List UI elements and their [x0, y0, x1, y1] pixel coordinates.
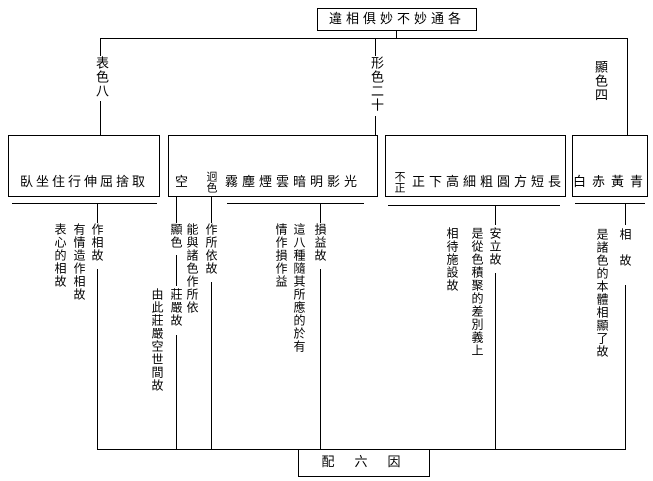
bracket-xianse-stub — [625, 203, 626, 225]
branch-left-line-bottom — [100, 101, 101, 135]
box-char-jiongse: 迥色 — [205, 171, 218, 193]
bracket-xianse — [575, 203, 645, 204]
bracket-xingse-stub — [495, 205, 496, 225]
bracket-xingse — [388, 205, 560, 206]
gloss-jiongse-note: 能與諸色作所依 — [184, 223, 200, 314]
branch-middle-line-top — [375, 38, 376, 56]
gloss-wu-guang-note1: 這八種隨其所應的於有 — [291, 223, 307, 353]
gloss-biaose-line — [97, 269, 98, 449]
branch-middle-line-bottom — [375, 116, 376, 135]
stub-jiongse — [211, 197, 212, 223]
gloss-xingse-chain: 安立故 — [487, 227, 503, 266]
gloss-jiongse-line — [211, 282, 212, 449]
bracket-wu-guang — [227, 203, 364, 204]
box-xingse-a: 空 迥色 霧塵煙雲暗明影光 — [168, 135, 378, 197]
root-node: 違相俱妙不妙通各 — [317, 8, 477, 31]
branch-label-xianse: 顯色四 — [591, 60, 607, 102]
bracket-biaose-stub — [97, 203, 98, 223]
box-char-buzheng: 不正 — [393, 171, 406, 193]
gloss-xingse-note2: 相待施設故 — [444, 227, 460, 292]
footer-node: 配六因相 — [298, 449, 430, 477]
branch-label-biaose: 表色八 — [92, 56, 108, 98]
box-xianse: 白赤黃青 — [572, 135, 648, 197]
gloss-kong-chain2: 莊嚴故 — [168, 288, 184, 327]
gloss-wu-guang-line — [320, 269, 321, 449]
gloss-wu-guang-chain: 損益故 — [312, 223, 328, 262]
box-chars-wu-guang: 霧塵煙雲暗明影光 — [225, 171, 361, 190]
branch-right-line — [627, 38, 628, 135]
bracket-biaose — [12, 203, 157, 204]
gloss-wu-guang-note2: 情作損作益 — [273, 223, 289, 288]
gloss-kong-line — [176, 335, 177, 449]
gloss-biaose-note1: 有情造作相故 — [71, 223, 87, 301]
gloss-xingse-note1: 是從色積聚的差別義上 — [469, 227, 485, 357]
diagram-canvas: 違相俱妙不妙通各 表色八 形色二十 顯色四 臥坐住行伸屈捨取 空 迥色 霧塵煙雲… — [0, 0, 653, 481]
gloss-kong-midline — [176, 255, 177, 286]
bracket-wu-guang-stub — [320, 203, 321, 223]
gloss-kong-chain1: 顯色 — [168, 223, 184, 249]
root-stem-line — [396, 31, 397, 38]
box-xianse-chars: 白赤黃青 — [573, 171, 647, 190]
gloss-xingse-line — [495, 273, 496, 449]
gloss-xianse-note: 是諸色的本體相顯了故 — [594, 228, 610, 358]
box-biaose: 臥坐住行伸屈捨取 — [8, 135, 160, 197]
branch-left-line-top — [100, 38, 101, 56]
box-chars-zheng-chang: 正下高細粗圓方短長 — [412, 171, 565, 190]
gloss-biaose-chain: 作相故 — [89, 223, 105, 262]
box-char-kong: 空 — [175, 171, 188, 190]
gloss-kong-note: 由此莊嚴空世間故 — [149, 288, 165, 392]
gloss-xianse-line — [625, 285, 626, 449]
gloss-biaose-note2: 表心的相故 — [52, 223, 68, 288]
stub-kong — [176, 197, 177, 223]
box-xingse-b: 不正 正下高細粗圓方短長 — [385, 135, 566, 197]
gloss-xianse-chain: 相 故 — [617, 228, 633, 267]
branch-label-xingse: 形色二十 — [367, 56, 383, 112]
gloss-jiongse-chain: 作所依故 — [203, 223, 219, 275]
box-biaose-chars: 臥坐住行伸屈捨取 — [9, 171, 159, 190]
branch-connector-line — [100, 38, 628, 39]
